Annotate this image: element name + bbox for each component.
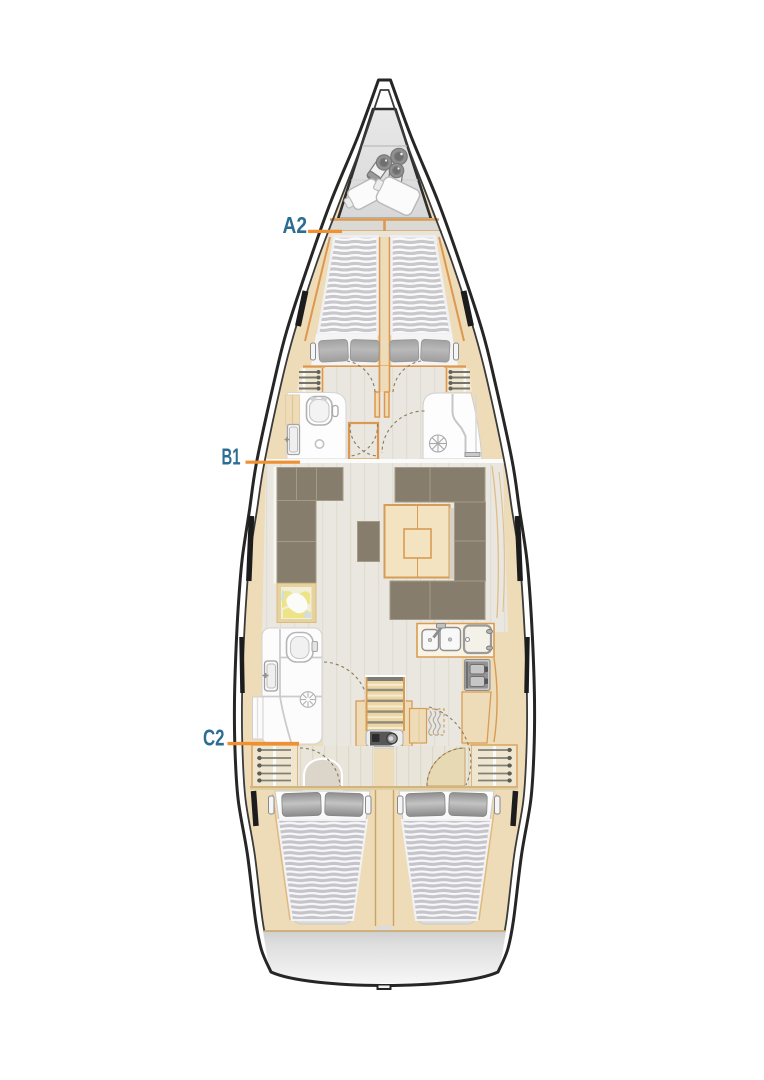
svg-text:A2: A2 <box>283 212 308 238</box>
svg-text:C2: C2 <box>203 725 225 751</box>
svg-text:B1: B1 <box>222 444 241 470</box>
